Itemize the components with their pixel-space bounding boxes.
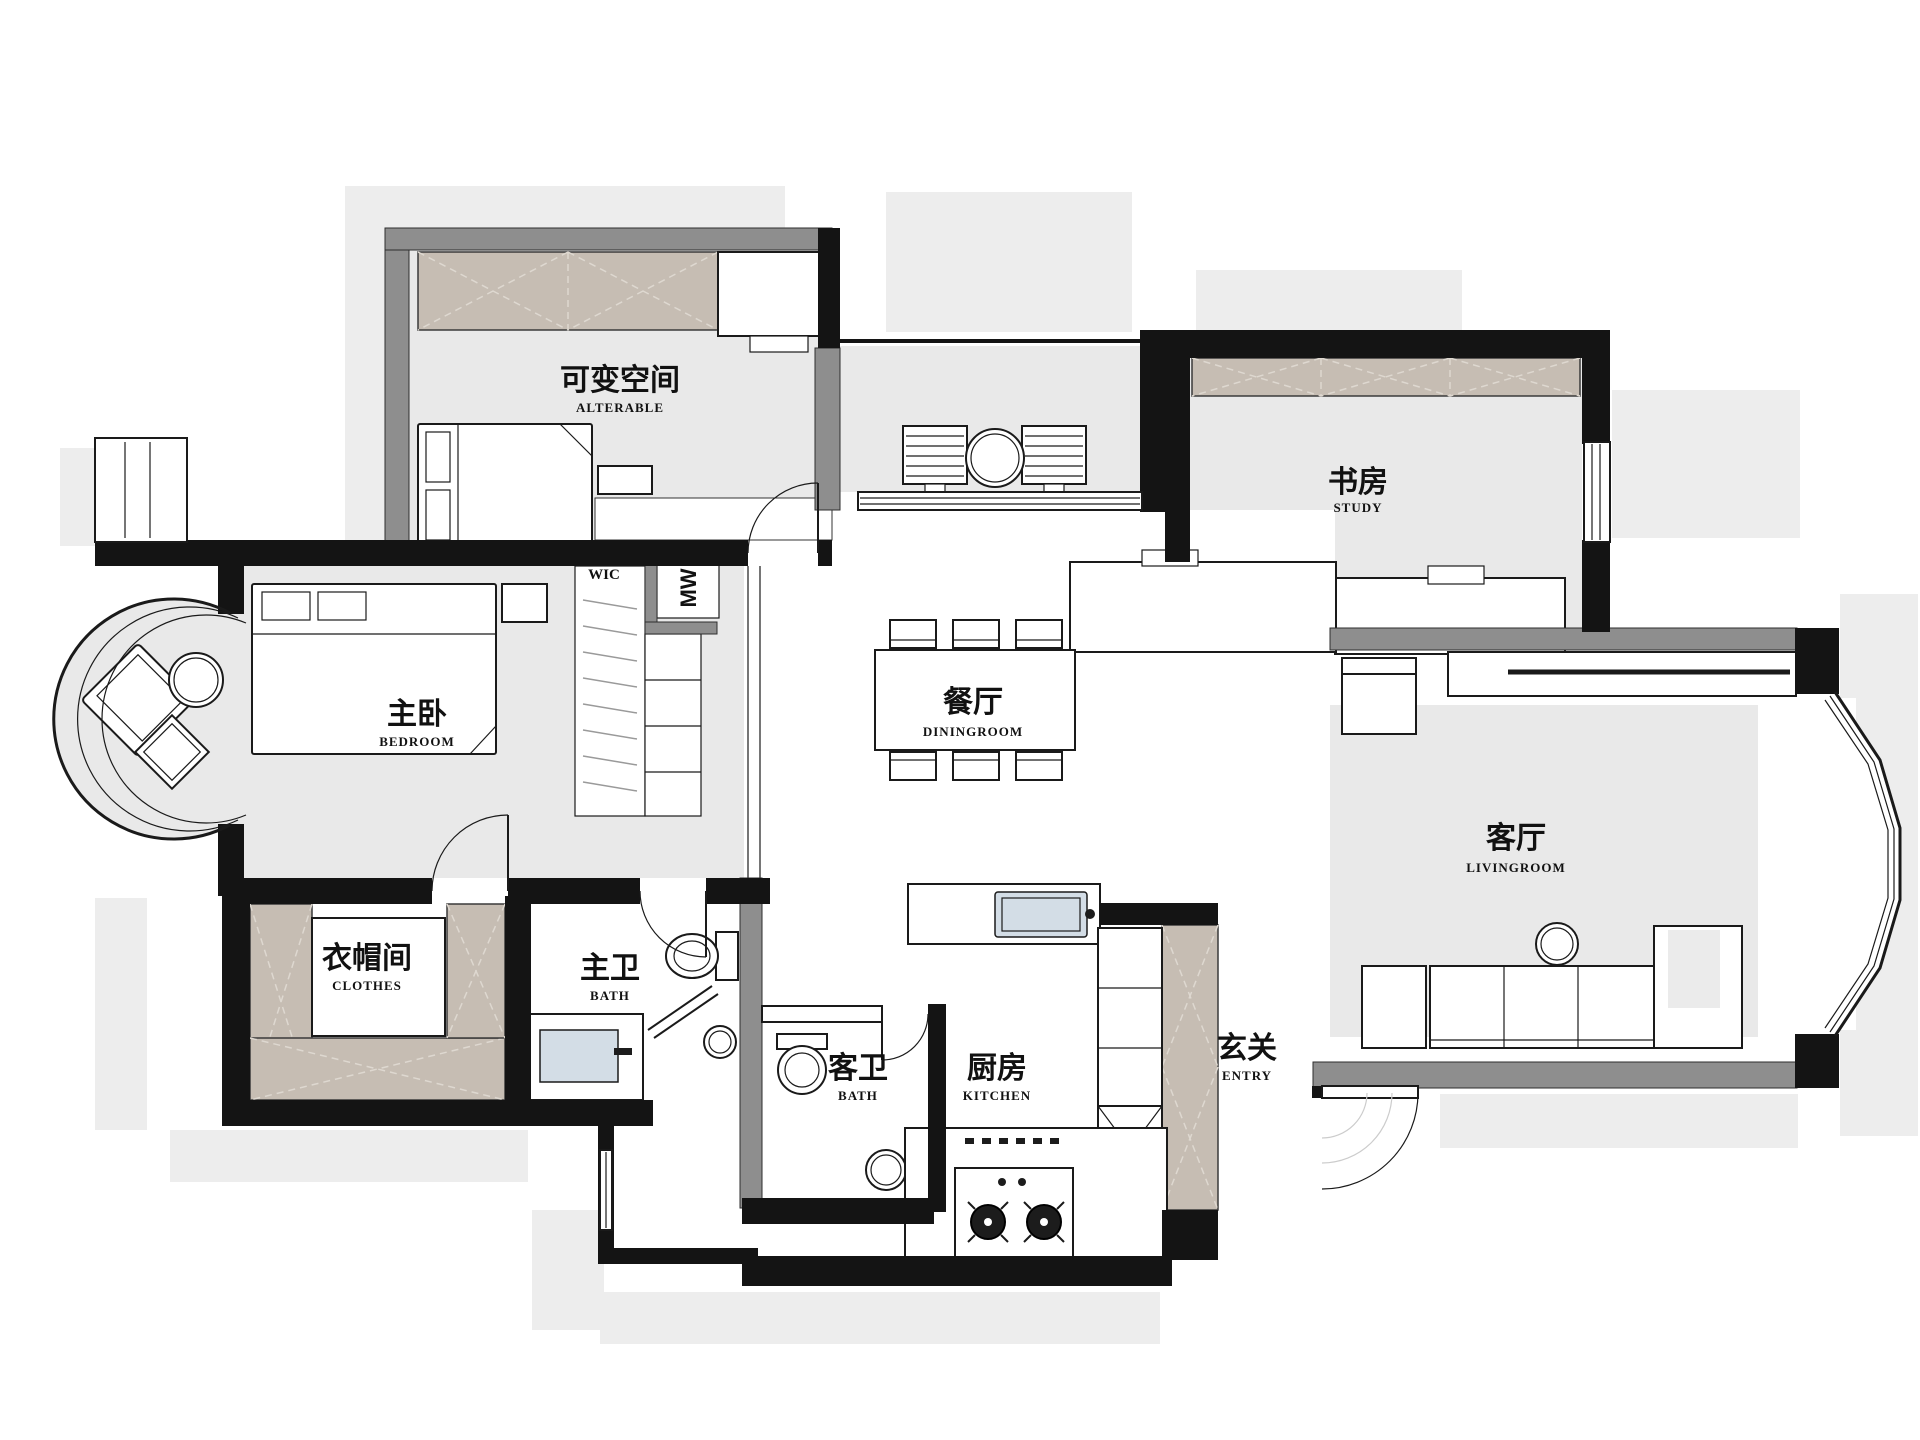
label-entry: 玄关 ENTRY	[1217, 1031, 1277, 1083]
label-closet: 衣帽间 CLOTHES	[322, 942, 412, 993]
room-label-study-en: STUDY	[1333, 500, 1382, 515]
room-label-kitchen-zh: 厨房	[967, 1052, 1027, 1085]
bedroom-furniture	[81, 548, 547, 789]
label-bedroom: 主卧 BEDROOM	[379, 698, 455, 749]
room-label-master-bath-zh: 主卫	[580, 952, 640, 985]
wall-closet-bath	[505, 896, 531, 1126]
room-label-entry-en: ENTRY	[1222, 1068, 1272, 1083]
room-label-study-zh: 书房	[1328, 466, 1388, 499]
closet-cabinet	[718, 252, 832, 336]
annotation-mw: MW	[676, 568, 701, 607]
sofa-end-table	[1362, 966, 1426, 1048]
wall-alterable-right	[818, 228, 840, 348]
wall-bath-kitchen	[740, 878, 762, 1208]
label-kitchen: 厨房 KITCHEN	[963, 1052, 1031, 1103]
shelf-column	[645, 634, 701, 816]
wall-guestbath-right	[928, 1004, 946, 1212]
room-label-closet-zh: 衣帽间	[322, 942, 412, 975]
room-label-alterable-zh: 可变空间	[560, 363, 680, 397]
bay-right-stub-top	[1795, 628, 1839, 694]
room-label-guest-bath-en: BATH	[838, 1088, 878, 1103]
toilet-guest	[777, 1034, 827, 1094]
label-study: 书房 STUDY	[1328, 466, 1388, 515]
wall-study-top	[1165, 330, 1610, 358]
room-label-entry-zh: 玄关	[1217, 1031, 1277, 1065]
kitchen-island	[908, 884, 1100, 944]
alcove-floor	[614, 1124, 760, 1250]
nightstand-master	[502, 584, 547, 622]
balcony-furniture	[903, 426, 1086, 492]
room-label-dining-zh: 餐厅	[943, 686, 1003, 719]
room-label-kitchen-en: KITCHEN	[963, 1088, 1031, 1103]
closet-furniture	[250, 904, 505, 1100]
wall-living-top	[1330, 628, 1797, 650]
wall-closet-left	[222, 896, 250, 1126]
label-alterable: 可变空间 ALTERABLE	[560, 363, 680, 415]
corridor-floor	[744, 566, 832, 878]
bed-master	[252, 584, 496, 754]
bay-right-stub-bottom	[1795, 1034, 1839, 1088]
room-label-living-en: LIVINGROOM	[1466, 860, 1566, 875]
wall-bath-bottom	[505, 1100, 653, 1126]
wall-balcony-right	[1140, 330, 1168, 512]
armchair-living	[1342, 658, 1416, 734]
wall-study-right-lower	[1582, 540, 1610, 632]
closet-island	[312, 918, 445, 1036]
nightstand	[598, 466, 652, 494]
dining-chairs-top	[890, 620, 1062, 648]
bed-single	[418, 424, 592, 556]
lounge-chair-right	[1022, 426, 1086, 492]
wall-mw-horizontal	[645, 622, 717, 634]
drawer-unit	[750, 336, 808, 352]
gas-hob	[955, 1168, 1073, 1260]
wall-living-bottom	[1313, 1062, 1797, 1088]
wall-guestbath-bottom	[742, 1198, 934, 1224]
room-label-bedroom-en: BEDROOM	[379, 734, 455, 749]
round-table	[966, 429, 1024, 487]
annotation-wic: WIC	[588, 567, 620, 583]
wall-closet-bottom	[222, 1100, 520, 1126]
side-table-bay	[169, 653, 223, 707]
room-label-master-bath-en: BATH	[590, 988, 630, 1003]
lounge-chair-left	[903, 426, 967, 492]
sofa-blanket	[1668, 930, 1720, 1008]
room-label-dining-en: DININGROOM	[923, 724, 1023, 739]
vanity-master	[525, 1014, 643, 1100]
toilet-master	[666, 932, 738, 980]
wall-alterable-left	[385, 228, 409, 562]
room-label-living-zh: 客厅	[1486, 821, 1546, 855]
wall-alcove-bottom	[598, 1248, 758, 1264]
room-label-bedroom-zh: 主卧	[387, 698, 447, 731]
wall-alterable-top	[385, 228, 832, 250]
dining-chairs-bottom	[890, 752, 1062, 780]
room-label-closet-en: CLOTHES	[332, 978, 402, 993]
window-study-east	[1584, 442, 1610, 542]
wall-mw-vertical	[645, 556, 657, 624]
room-label-alterable-en: ALTERABLE	[576, 400, 664, 415]
wall-study-left	[1165, 330, 1190, 562]
floor-plan-page: 可变空间 ALTERABLE 书房 STUDY 主卧 BEDROOM 餐厅 DI…	[0, 0, 1920, 1440]
alterable-step	[595, 498, 832, 540]
sideboard	[1070, 562, 1336, 652]
monitor	[1428, 566, 1484, 584]
wall-study-right-upper	[1582, 332, 1610, 444]
floor-plan-canvas: 可变空间 ALTERABLE 书房 STUDY 主卧 BEDROOM 餐厅 DI…	[0, 0, 1920, 1440]
room-label-guest-bath-zh: 客卫	[828, 1051, 888, 1085]
window-west	[95, 438, 187, 542]
wall-bedroom-top	[225, 540, 748, 566]
door-entry	[1312, 1086, 1418, 1189]
side-table-living	[1536, 923, 1578, 965]
wall-kitchen-bottom	[742, 1256, 1172, 1286]
kitchen-tall-cabinet	[1162, 925, 1218, 1210]
wall-kitchen-top	[1100, 903, 1218, 925]
window-balcony	[858, 492, 1142, 510]
window-alcove	[600, 1150, 612, 1230]
